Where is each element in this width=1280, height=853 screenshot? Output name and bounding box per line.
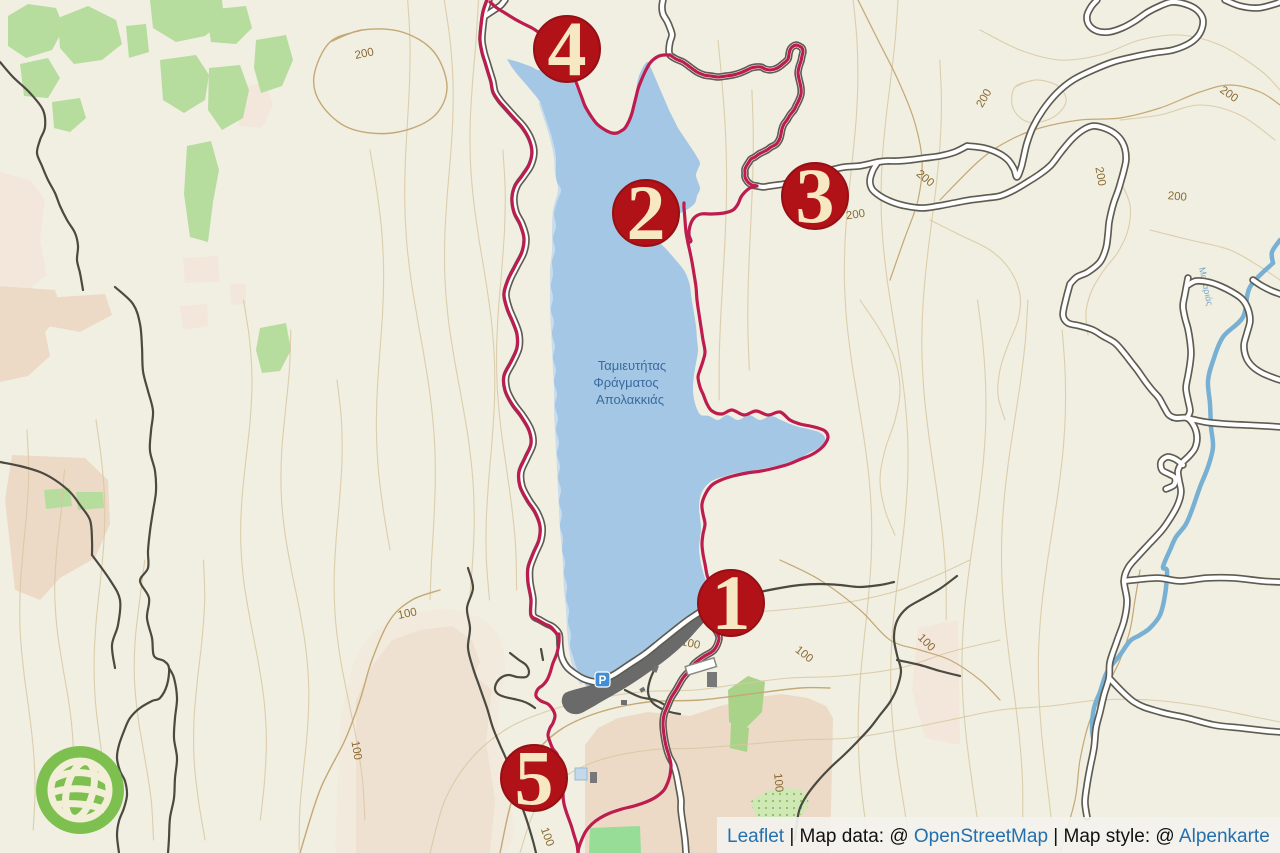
- svg-text:Απολακκιάς: Απολακκιάς: [596, 392, 664, 407]
- svg-text:2: 2: [627, 169, 666, 256]
- svg-text:Leaflet | Map data: @ OpenStre: Leaflet | Map data: @ OpenStreetMap | Ma…: [727, 826, 1270, 847]
- svg-text:200: 200: [1167, 190, 1187, 204]
- svg-text:3: 3: [796, 152, 835, 239]
- svg-text:Φράγματος: Φράγματος: [593, 375, 658, 390]
- svg-text:4: 4: [548, 5, 587, 92]
- svg-text:5: 5: [515, 734, 554, 821]
- svg-text:Ταμιευτήτας: Ταμιευτήτας: [598, 358, 666, 373]
- svg-text:P: P: [599, 675, 607, 687]
- svg-text:1: 1: [712, 559, 751, 646]
- svg-text:100: 100: [771, 773, 785, 793]
